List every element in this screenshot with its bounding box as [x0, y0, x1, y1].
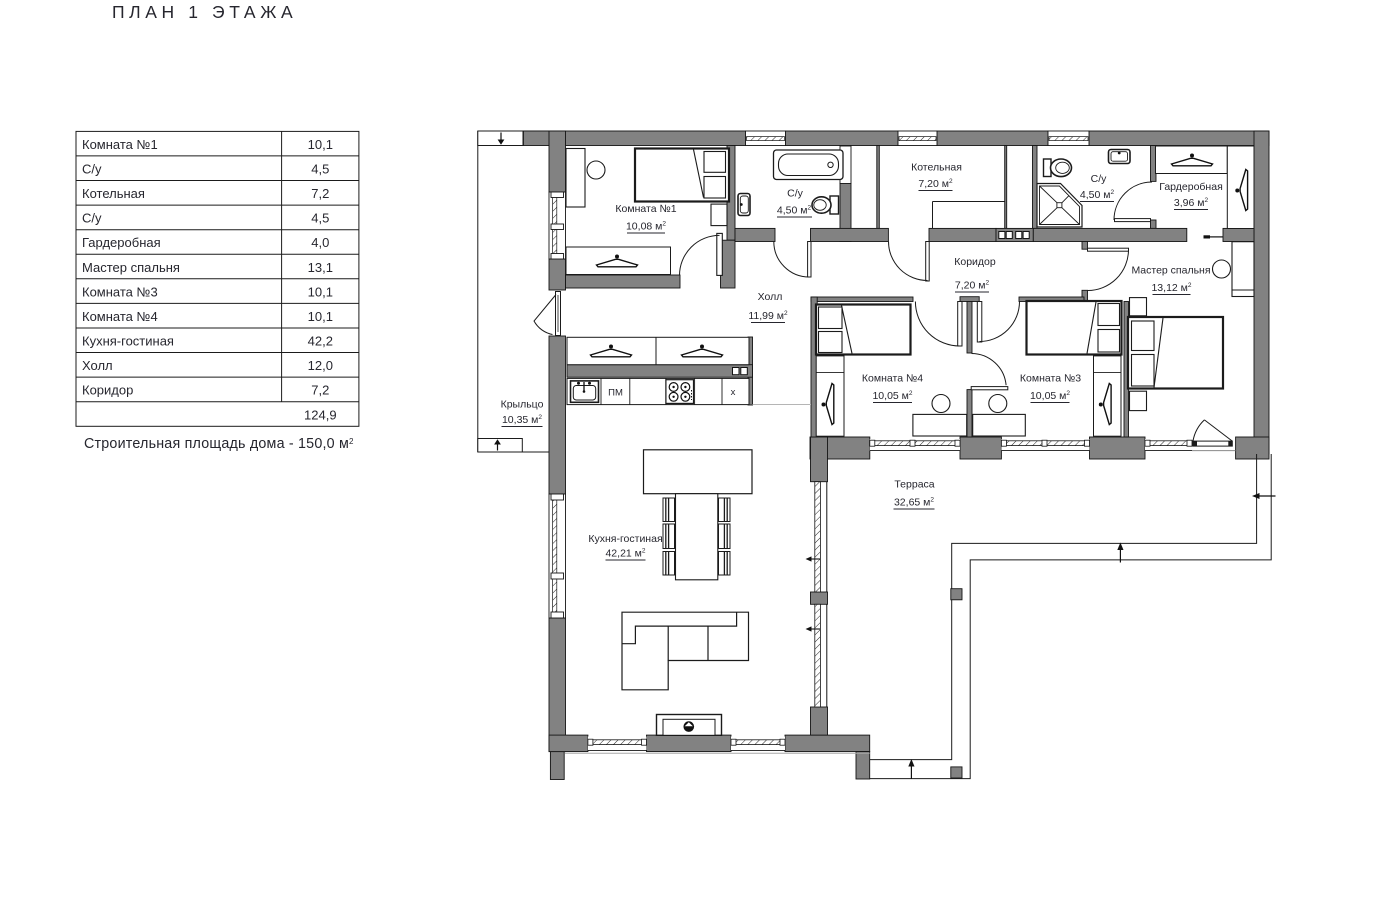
- svg-text:Комната №1: Комната №1: [615, 203, 676, 215]
- svg-text:13,1: 13,1: [308, 260, 333, 275]
- svg-text:Комната №3: Комната №3: [1020, 373, 1081, 385]
- svg-text:42,2: 42,2: [308, 334, 333, 349]
- svg-text:4,50 м2: 4,50 м2: [1080, 189, 1115, 201]
- svg-text:10,05 м2: 10,05 м2: [872, 390, 912, 402]
- svg-text:Комната №4: Комната №4: [862, 373, 923, 385]
- svg-text:ПМ: ПМ: [608, 388, 623, 399]
- svg-text:32,65 м2: 32,65 м2: [894, 497, 934, 509]
- svg-text:Холл: Холл: [758, 291, 783, 303]
- svg-text:10,1: 10,1: [308, 284, 333, 299]
- svg-text:4,5: 4,5: [311, 162, 329, 177]
- svg-text:Комната №3: Комната №3: [82, 284, 158, 299]
- svg-text:Кухня-гостиная: Кухня-гостиная: [588, 533, 662, 545]
- svg-text:х: х: [731, 387, 736, 398]
- svg-text:4,0: 4,0: [311, 235, 329, 250]
- svg-text:7,20 м2: 7,20 м2: [918, 178, 953, 190]
- svg-text:Мастер спальня: Мастер спальня: [82, 260, 180, 275]
- svg-text:Коридор: Коридор: [82, 383, 133, 398]
- svg-text:10,1: 10,1: [308, 309, 333, 324]
- svg-text:10,1: 10,1: [308, 137, 333, 152]
- svg-text:124,9: 124,9: [304, 407, 337, 422]
- svg-text:Кухня-гостиная: Кухня-гостиная: [82, 334, 174, 349]
- svg-text:Котельная: Котельная: [911, 162, 962, 174]
- svg-text:Котельная: Котельная: [82, 186, 145, 201]
- svg-text:13,12 м2: 13,12 м2: [1151, 282, 1191, 294]
- svg-text:7,20 м2: 7,20 м2: [955, 280, 990, 292]
- svg-text:Коридор: Коридор: [954, 256, 996, 268]
- svg-text:Комната №1: Комната №1: [82, 137, 158, 152]
- svg-text:4,5: 4,5: [311, 211, 329, 226]
- svg-text:С/у: С/у: [1091, 173, 1108, 185]
- svg-text:Строительная площадь дома - 15: Строительная площадь дома - 150,0 м2: [84, 436, 354, 452]
- svg-text:Крыльцо: Крыльцо: [501, 399, 544, 411]
- svg-text:12,0: 12,0: [308, 358, 333, 373]
- svg-text:Мастер спальня: Мастер спальня: [1131, 265, 1210, 277]
- svg-text:4,50 м2: 4,50 м2: [777, 205, 812, 217]
- svg-text:С/у: С/у: [787, 188, 804, 200]
- svg-text:ПЛАН 1 ЭТАЖА: ПЛАН 1 ЭТАЖА: [112, 2, 297, 22]
- svg-text:Терраса: Терраса: [894, 479, 934, 491]
- svg-text:10,08 м2: 10,08 м2: [626, 221, 666, 233]
- svg-text:7,2: 7,2: [311, 383, 329, 398]
- svg-text:С/у: С/у: [82, 162, 102, 177]
- svg-text:Гардеробная: Гардеробная: [82, 235, 161, 250]
- svg-text:42,21 м2: 42,21 м2: [605, 548, 645, 560]
- svg-text:Холл: Холл: [82, 358, 113, 373]
- svg-text:10,05 м2: 10,05 м2: [1030, 390, 1070, 402]
- svg-text:10,35 м2: 10,35 м2: [502, 414, 542, 426]
- svg-text:3,96 м2: 3,96 м2: [1174, 197, 1209, 209]
- svg-text:Комната №4: Комната №4: [82, 309, 158, 324]
- svg-text:Гардеробная: Гардеробная: [1159, 181, 1223, 193]
- svg-text:С/у: С/у: [82, 211, 102, 226]
- svg-text:11,99 м2: 11,99 м2: [748, 310, 788, 322]
- svg-text:7,2: 7,2: [311, 186, 329, 201]
